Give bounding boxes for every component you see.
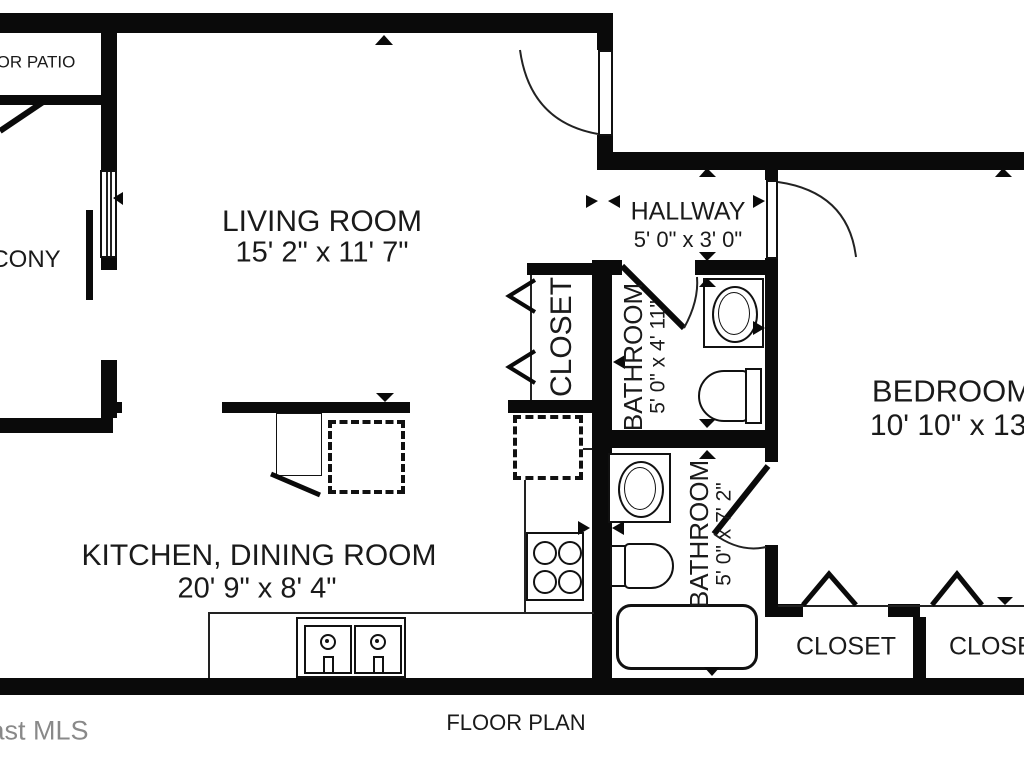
- hall-closet-bifold-chevron: [509, 280, 535, 312]
- pantry-door-swing: [271, 474, 320, 495]
- hall-closet-bifold-chevron: [509, 351, 535, 383]
- marker-triangle-down-bathroom-bottom: [704, 667, 720, 676]
- living-room-dims: 15' 2" x 11' 7": [235, 239, 408, 268]
- entry-door-arc: [520, 50, 598, 134]
- balcony-label: CONY: [0, 248, 61, 272]
- living-room-label: LIVING ROOM: [222, 207, 422, 237]
- marker-triangle-right-living-opening: [586, 195, 598, 208]
- floor-plan: LIVING ROOM 15' 2" x 11' 7" HALLWAY 5' 0…: [0, 0, 1024, 768]
- bathroom-top-door-arc: [684, 277, 697, 328]
- marker-triangle-left-balcony-window: [113, 192, 123, 205]
- bedroom-door-arc: [778, 182, 856, 257]
- bedroom-label: BEDROOM: [872, 376, 1024, 407]
- marker-triangle-up-living: [375, 35, 393, 45]
- kitchen-dining-label: KITCHEN, DINING ROOM: [81, 541, 436, 571]
- bedroom-closet-bifold-chevron: [932, 574, 982, 605]
- mls-watermark: ast MLS: [0, 718, 89, 745]
- marker-triangle-up-bedroom: [995, 168, 1012, 177]
- marker-triangle-right-bathroom-top: [753, 321, 765, 335]
- bedroom-closet-left-label: CLOSET: [796, 635, 896, 660]
- bedroom-closet-right-label: CLOSET: [949, 635, 1024, 660]
- patio-door-leaf: [0, 100, 46, 131]
- kitchen-dining-dims: 20' 9" x 8' 4": [177, 575, 336, 604]
- marker-triangle-up-bathroom-bottom: [699, 450, 716, 459]
- patio-label: OR PATIO: [0, 54, 75, 71]
- marker-triangle-right-hallway: [753, 195, 765, 208]
- bathroom-bottom-label: BATHROOM: [686, 460, 712, 608]
- marker-triangle-down-kitchen: [376, 393, 394, 402]
- bedroom-closet-bifold-chevron: [803, 574, 856, 605]
- hall-closet-label: CLOSET: [547, 277, 577, 397]
- bathroom-top-dims: 5' 0" x 4' 11": [648, 300, 669, 414]
- marker-triangle-right-kitchen: [578, 521, 590, 535]
- bathroom-top-label: BATHROOM: [620, 283, 646, 431]
- plan-title: FLOOR PLAN: [446, 712, 585, 734]
- marker-triangle-down-hallway: [699, 252, 716, 261]
- marker-triangle-up-hallway: [699, 168, 716, 177]
- hallway-dims: 5' 0" x 3' 0": [634, 229, 742, 251]
- marker-triangle-down-bedroom: [997, 597, 1013, 605]
- marker-triangle-left-hallway: [608, 195, 620, 208]
- bedroom-dims: 10' 10" x 13': [870, 411, 1024, 441]
- marker-triangle-up-bathroom-top: [699, 278, 716, 287]
- bathroom-bottom-dims: 5' 0" x 7' 2": [714, 482, 735, 585]
- marker-triangle-down-bathroom-top: [699, 419, 716, 428]
- marker-triangle-left-bathroom-bottom: [612, 521, 624, 535]
- hallway-label: HALLWAY: [631, 200, 746, 225]
